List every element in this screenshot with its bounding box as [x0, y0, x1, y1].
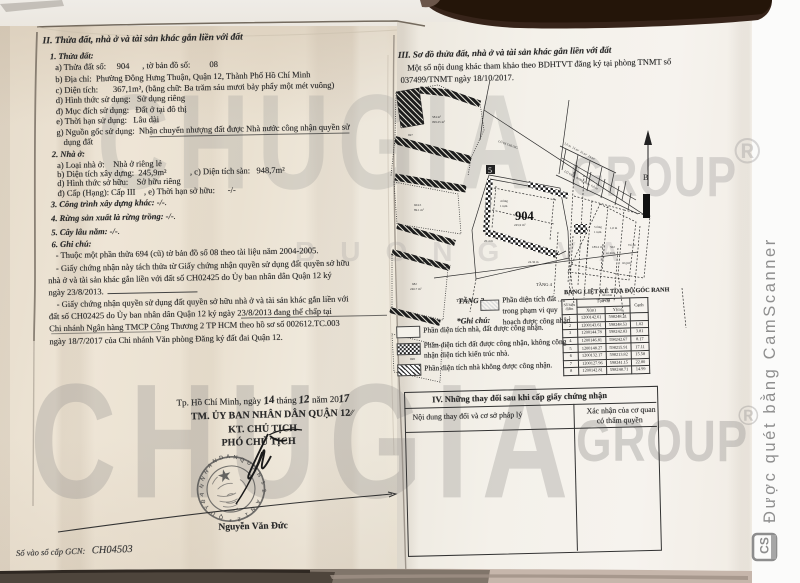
- svg-text:Tố 44: Tố 44: [628, 243, 636, 247]
- svg-text:LÔ ĐI CHUNG: LÔ ĐI CHUNG: [498, 138, 520, 150]
- svg-text:1 tụm: 1 tụm: [594, 230, 602, 234]
- svg-text:B: B: [643, 173, 648, 182]
- svg-text:TẦNG 4: TẦNG 4: [536, 282, 553, 287]
- svg-text:CS: CS: [758, 537, 772, 554]
- svg-text:24.36 m: 24.36 m: [528, 260, 539, 264]
- svg-text:1,0 m 14 m² 16 m² 14 m²: 1,0 m 14 m² 16 m² 14 m²: [563, 141, 596, 162]
- svg-text:1,0 m: 1,0 m: [610, 226, 618, 231]
- svg-text:246.7 m²: 246.7 m²: [410, 287, 421, 291]
- svg-text:245,9 m²: 245,9 m²: [514, 223, 525, 228]
- svg-text:tứ giới: tứ giới: [622, 261, 631, 265]
- svg-text:502: 502: [610, 245, 615, 249]
- svg-text:5 tầng: 5 tầng: [594, 225, 602, 229]
- svg-text:682: 682: [412, 282, 417, 286]
- svg-text:số thửa: số thửa: [606, 251, 616, 255]
- svg-text:4 tầng: 4 tầng: [500, 199, 508, 203]
- svg-text:5: 5: [488, 166, 492, 175]
- svg-text:LÔ GIỚI đường nhựa 6,0 m: LÔ GIỚI đường nhựa 6,0 m: [563, 168, 599, 191]
- svg-text:604.5: 604.5: [414, 203, 422, 207]
- svg-text:584 m²: 584 m²: [432, 115, 441, 119]
- svg-text:189.2 m²: 189.2 m²: [592, 245, 603, 249]
- svg-text:904: 904: [515, 209, 535, 223]
- svg-text:697: 697: [408, 133, 413, 137]
- svg-text:099.25 m²: 099.25 m²: [432, 120, 445, 124]
- svg-text:89.1 m²: 89.1 m²: [414, 208, 424, 212]
- svg-text:1 tụm: 1 tụm: [500, 204, 508, 208]
- svg-text:698: 698: [410, 357, 415, 361]
- svg-text:20.4 m: 20.4 m: [484, 239, 493, 243]
